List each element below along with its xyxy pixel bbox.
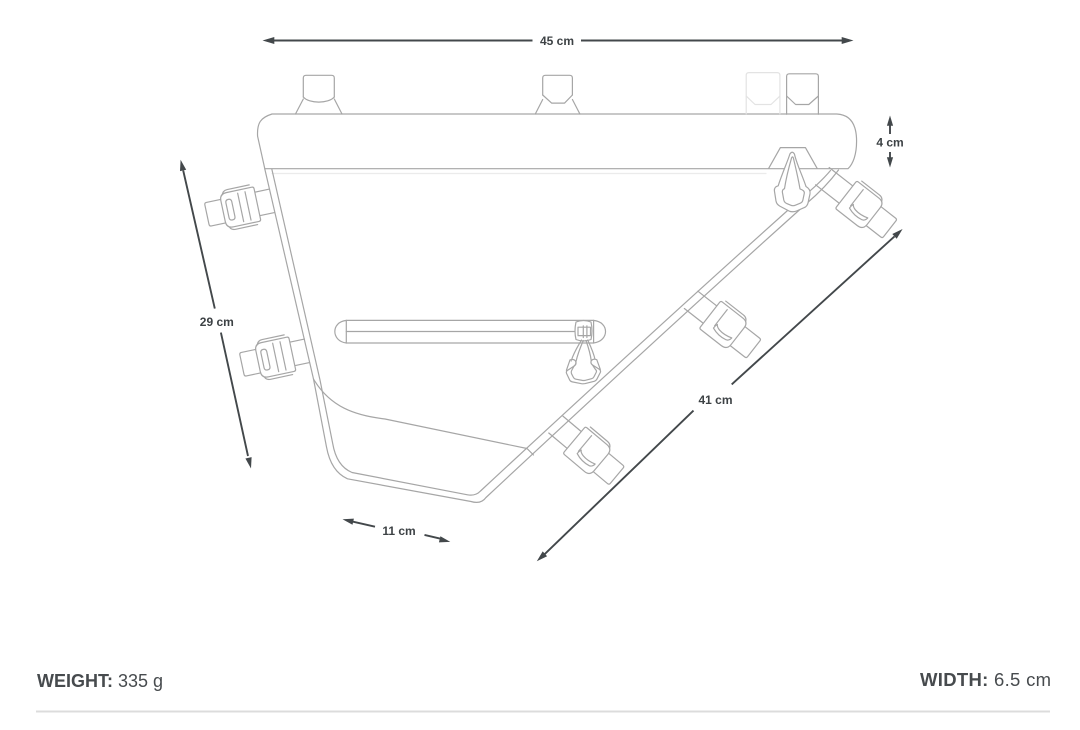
svg-text:WEIGHT: 335 g: WEIGHT: 335 g: [37, 671, 163, 691]
svg-text:29 cm: 29 cm: [200, 315, 234, 329]
svg-text:11 cm: 11 cm: [382, 524, 415, 538]
svg-text:45 cm: 45 cm: [540, 34, 574, 48]
svg-text:4 cm: 4 cm: [876, 136, 903, 150]
svg-text:41 cm: 41 cm: [698, 393, 732, 407]
svg-text:WIDTH: 6.5 cm: WIDTH: 6.5 cm: [920, 669, 1051, 690]
